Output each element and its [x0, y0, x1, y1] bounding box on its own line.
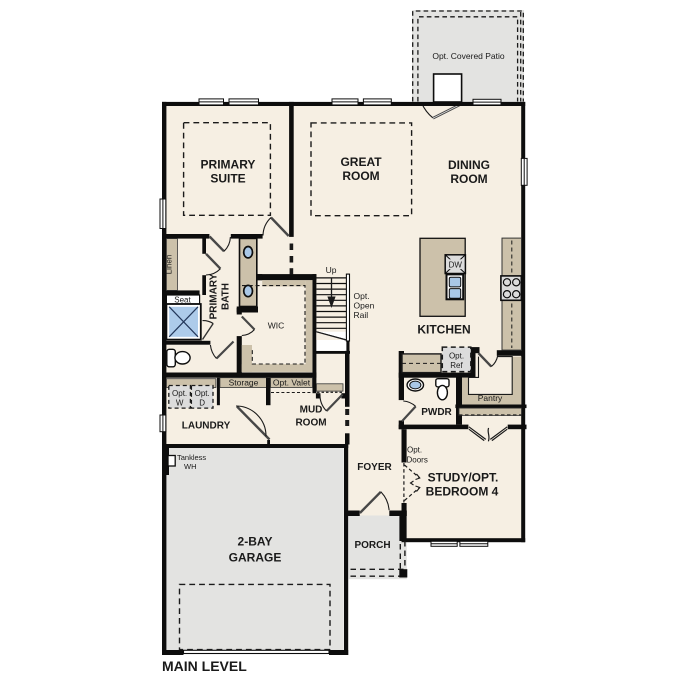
- svg-text:PORCH: PORCH: [354, 540, 390, 551]
- svg-text:Pantry: Pantry: [478, 393, 503, 403]
- svg-text:SUITE: SUITE: [210, 171, 245, 185]
- svg-text:Opt. Covered Patio: Opt. Covered Patio: [432, 51, 505, 61]
- svg-text:Rail: Rail: [354, 310, 369, 320]
- svg-text:Opt.: Opt.: [195, 389, 210, 398]
- svg-text:MUD: MUD: [300, 405, 323, 416]
- svg-text:Doors: Doors: [407, 456, 428, 465]
- svg-text:GARAGE: GARAGE: [229, 551, 282, 565]
- svg-text:Opt.: Opt.: [407, 446, 422, 455]
- svg-text:GREAT: GREAT: [340, 155, 382, 169]
- svg-text:WIC: WIC: [268, 321, 285, 331]
- svg-text:Up: Up: [326, 265, 337, 275]
- svg-text:ROOM: ROOM: [450, 172, 487, 186]
- svg-text:DW: DW: [449, 261, 463, 270]
- svg-text:W: W: [176, 399, 184, 408]
- svg-text:PWDR: PWDR: [421, 407, 452, 418]
- svg-text:Ref: Ref: [450, 361, 463, 370]
- svg-text:Storage: Storage: [229, 378, 259, 388]
- svg-text:LAUNDRY: LAUNDRY: [182, 421, 231, 432]
- svg-text:PRIMARY: PRIMARY: [201, 157, 256, 171]
- svg-text:Tankless: Tankless: [177, 453, 206, 462]
- svg-text:Open: Open: [354, 301, 375, 311]
- svg-text:D: D: [199, 399, 205, 408]
- svg-text:MAIN LEVEL: MAIN LEVEL: [162, 658, 247, 674]
- svg-text:Linen: Linen: [165, 255, 174, 275]
- svg-text:DINING: DINING: [448, 158, 490, 172]
- svg-text:Opt.: Opt.: [172, 389, 187, 398]
- svg-text:Opt.: Opt.: [354, 291, 370, 301]
- svg-text:Opt. Valet: Opt. Valet: [273, 378, 311, 388]
- svg-text:FOYER: FOYER: [357, 462, 392, 473]
- svg-text:BATH: BATH: [221, 283, 232, 310]
- svg-text:2-BAY: 2-BAY: [238, 535, 273, 549]
- svg-text:PRIMARY: PRIMARY: [209, 273, 220, 319]
- svg-text:BEDROOM 4: BEDROOM 4: [426, 485, 499, 499]
- svg-text:WH: WH: [184, 462, 197, 471]
- svg-text:STUDY/OPT.: STUDY/OPT.: [428, 471, 499, 485]
- svg-text:KITCHEN: KITCHEN: [417, 323, 470, 337]
- svg-text:ROOM: ROOM: [342, 169, 379, 183]
- svg-text:ROOM: ROOM: [295, 418, 326, 429]
- svg-text:Opt.: Opt.: [449, 351, 464, 360]
